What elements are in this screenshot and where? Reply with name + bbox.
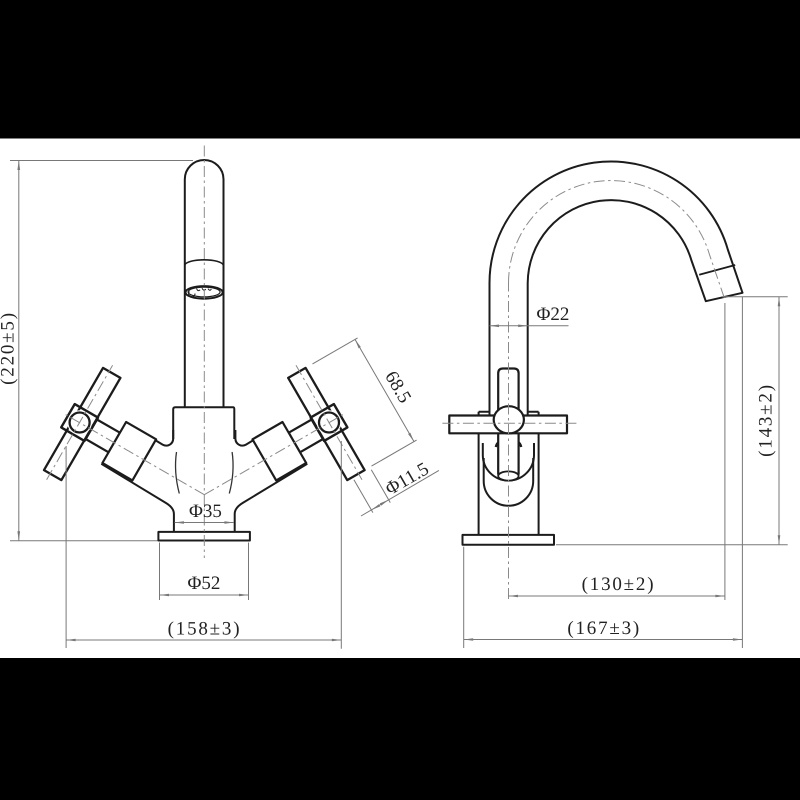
svg-text:Φ35: Φ35 <box>189 501 222 522</box>
svg-text:(167±3): (167±3) <box>567 618 641 639</box>
svg-text:(130±2): (130±2) <box>582 574 656 595</box>
svg-text:(143±2): (143±2) <box>756 383 777 457</box>
svg-text:Φ22: Φ22 <box>537 304 570 325</box>
svg-text:(158±3): (158±3) <box>168 619 242 640</box>
svg-text:Φ52: Φ52 <box>188 573 221 594</box>
svg-text:(220±5): (220±5) <box>0 311 19 385</box>
